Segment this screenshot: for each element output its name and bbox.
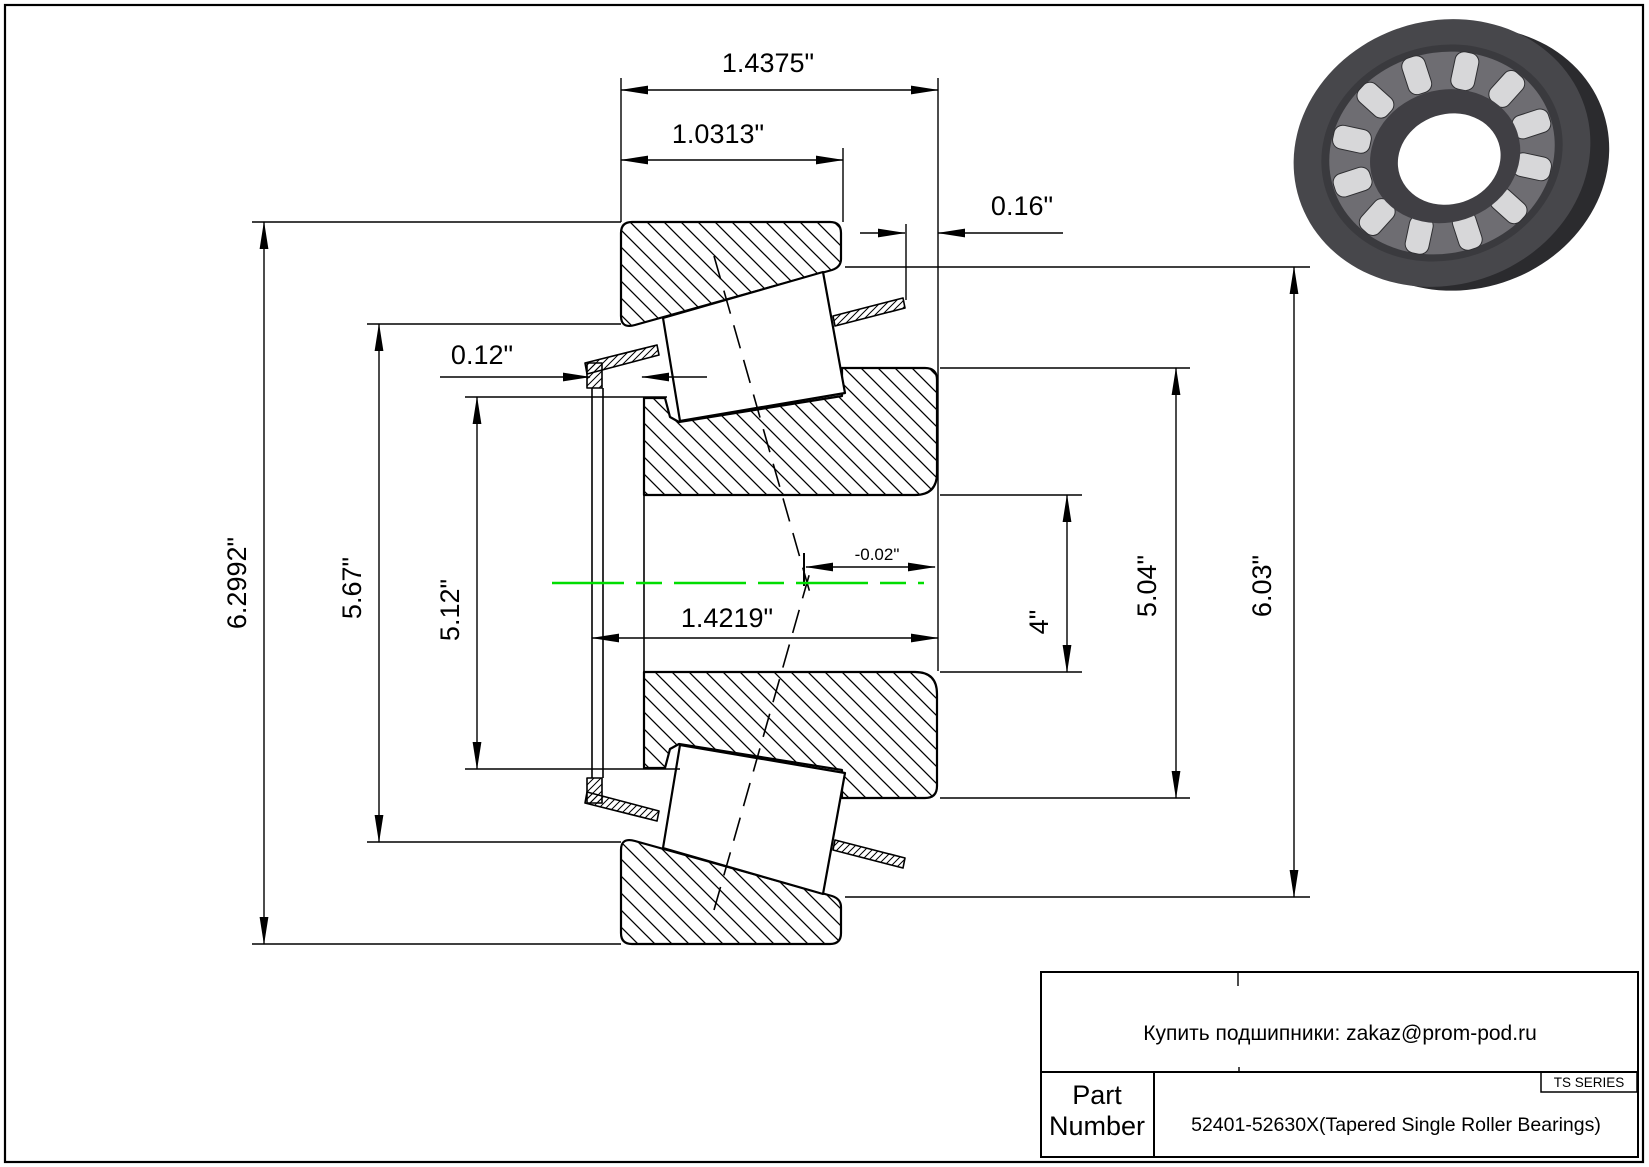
dim-label-cage-od: 5.12" xyxy=(435,579,465,641)
dim-label-cone-width: 1.4219" xyxy=(681,603,773,633)
dim-label-cage-clearance: 0.12" xyxy=(451,340,513,370)
dim-label-race-large: 6.03" xyxy=(1247,555,1277,617)
dim-label-bore: 4" xyxy=(1024,610,1054,635)
dim-label-effective-center: -0.02" xyxy=(855,545,900,564)
bearing-3d-render-image xyxy=(1259,0,1644,334)
series-badge: TS SERIES xyxy=(1554,1075,1625,1090)
part-number-label-line1: Part xyxy=(1072,1080,1122,1110)
dim-label-cup-width: 1.0313" xyxy=(672,119,764,149)
dim-label-overall-width: 1.4375" xyxy=(722,48,814,78)
engineering-drawing-page: 1.4375" 1.0313" 0.16" 0.12" -0.02" 1.421… xyxy=(0,0,1649,1167)
contact-text: Купить подшипники: zakaz@prom-pod.ru xyxy=(1143,1022,1537,1045)
bearing-section-view xyxy=(552,222,937,944)
title-block: Купить подшипники: zakaz@prom-pod.ru TS … xyxy=(1041,972,1638,1157)
dim-label-race-small: 5.67" xyxy=(337,557,367,619)
dim-label-stand-out: 0.16" xyxy=(991,191,1053,221)
dim-label-rib-od: 5.04" xyxy=(1132,555,1162,617)
dim-label-cup-od: 6.2992" xyxy=(222,537,252,629)
part-number-label-line2: Number xyxy=(1049,1111,1145,1141)
part-number-value: 52401-52630X(Tapered Single Roller Beari… xyxy=(1191,1114,1601,1136)
